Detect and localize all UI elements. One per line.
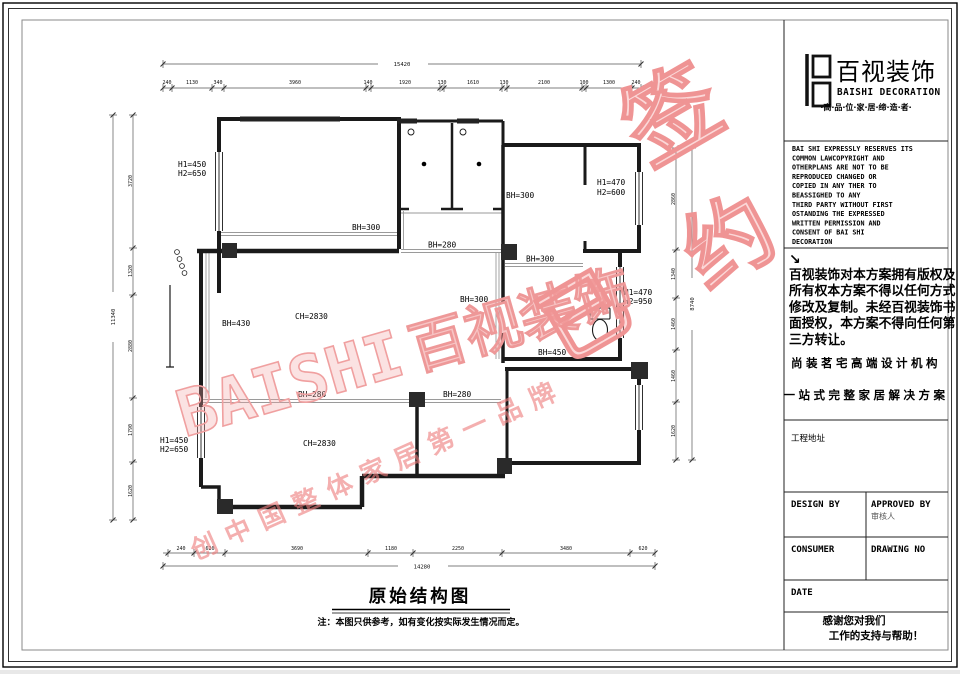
svg-text:1920: 1920 — [399, 80, 411, 86]
dim-left-total: 11340 — [111, 309, 117, 326]
svg-text:130: 130 — [437, 80, 446, 86]
thanks-note: 感谢您对我们 — [823, 614, 886, 627]
label-bh: BH=280 — [428, 241, 456, 250]
label-bh: BH=300 — [352, 223, 380, 232]
svg-text:240: 240 — [176, 546, 185, 552]
svg-text:140: 140 — [363, 80, 372, 86]
svg-text:BAI SHI EXPRESSLY RESERVES ITS: BAI SHI EXPRESSLY RESERVES ITS — [792, 145, 913, 153]
watermark-brand-en: BAISHI — [169, 318, 412, 453]
svg-text:2100: 2100 — [538, 80, 550, 86]
logo-company-name-en: BAISHI DECORATION — [837, 87, 941, 98]
svg-text:2250: 2250 — [452, 546, 464, 552]
label-ch: CH=2830 — [295, 312, 328, 321]
svg-text:1460: 1460 — [671, 370, 677, 382]
svg-text:OTHERPLANS ARE NOT TO BE: OTHERPLANS ARE NOT TO BE — [792, 164, 889, 172]
svg-text:3480: 3480 — [560, 546, 572, 552]
label-ch: CH=2830 — [303, 439, 336, 448]
watermark-stamp-char: 已 — [523, 252, 647, 382]
dim-top-total: 15420 — [394, 62, 411, 68]
svg-text:修改及复制。未经百视装饰书: 修改及复制。未经百视装饰书 — [788, 299, 956, 315]
logo-tagline: ·高·品·位·家·居·缔·造·者· — [820, 102, 911, 112]
arrow-icon: ↘ — [789, 252, 801, 268]
svg-text:OSTANDING THE EXPRESSED: OSTANDING THE EXPRESSED — [792, 210, 885, 218]
svg-text:1130: 1130 — [186, 80, 198, 86]
floorplan-canvas: 15420 240 1130 340 3960 140 1920 130 161… — [0, 0, 960, 670]
svg-text:240: 240 — [162, 80, 171, 86]
svg-text:COMMON LAWCOPYRIGHT AND: COMMON LAWCOPYRIGHT AND — [792, 154, 885, 162]
svg-text:130: 130 — [499, 80, 508, 86]
svg-text:1620: 1620 — [128, 485, 134, 497]
drawing-sheet: 15420 240 1130 340 3960 140 1920 130 161… — [0, 0, 960, 670]
svg-text:340: 340 — [213, 80, 222, 86]
label-bh: BH=300 — [526, 255, 554, 264]
svg-text:三方转让。: 三方转让。 — [789, 332, 853, 348]
svg-text:CONSENT OF BAI SHI: CONSENT OF BAI SHI — [792, 229, 864, 237]
svg-text:3960: 3960 — [289, 80, 301, 86]
logo-company-name-cn: 百视装饰 — [836, 58, 936, 86]
watermark-stamp-char: 约 — [665, 175, 793, 308]
svg-text:2860: 2860 — [671, 193, 677, 205]
svg-text:工作的支持与帮助！: 工作的支持与帮助！ — [829, 629, 924, 642]
svg-text:100: 100 — [579, 80, 588, 86]
label-bh: BH=300 — [506, 191, 534, 200]
svg-text:620: 620 — [638, 546, 647, 552]
shaft-drain-dot — [422, 162, 427, 167]
slogan-design-agency: 尚装茗宅高端设计机构 — [791, 356, 941, 370]
dim-right-total: 8740 — [690, 297, 696, 310]
svg-text:1460: 1460 — [671, 318, 677, 330]
svg-text:WRITTEN PERMISSION AND: WRITTEN PERMISSION AND — [792, 219, 881, 227]
svg-text:1340: 1340 — [671, 268, 677, 280]
watermark-stamp-char: 签 — [605, 46, 741, 187]
svg-text:面授权，本方案不得向任何第: 面授权，本方案不得向任何第 — [789, 316, 956, 332]
label-bh: BH=280 — [443, 390, 471, 399]
watermark: BAISHI 百视装饰 已 签 约 创中国整体家居第一品牌 — [169, 46, 793, 567]
slogan-one-stop: 一站式完整家居解决方案 — [784, 388, 949, 402]
shaft-drain-dot — [477, 162, 482, 167]
title-block-panel: 百视装饰 BAISHI DECORATION ·高·品·位·家·居·缔·造·者·… — [784, 20, 956, 650]
svg-text:2880: 2880 — [128, 340, 134, 352]
label-h1-h2: H1=450 — [178, 160, 206, 169]
label-bh: BH=430 — [222, 319, 250, 328]
svg-text:H2=650: H2=650 — [160, 445, 188, 454]
svg-text:THIRD PARTY WITHOUT FIRST: THIRD PARTY WITHOUT FIRST — [792, 201, 893, 209]
svg-text:1300: 1300 — [603, 80, 615, 86]
copyright-notice-en: BAI SHI EXPRESSLY RESERVES ITS COMMON LA… — [792, 145, 913, 246]
consumer-label: CONSUMER — [791, 545, 835, 555]
svg-text:1320: 1320 — [128, 265, 134, 277]
shaft-corner-pipe — [408, 129, 414, 135]
project-address-label: 工程地址 — [791, 433, 826, 444]
svg-text:H2=650: H2=650 — [178, 169, 206, 178]
drawing-no-label: DRAWING NO — [871, 545, 926, 555]
shaft-corner-pipe — [460, 129, 466, 135]
svg-text:3720: 3720 — [128, 175, 134, 187]
svg-text:所有权本方案不得以任何方式: 所有权本方案不得以任何方式 — [789, 283, 956, 299]
drawing-title: 原始结构图 — [369, 586, 472, 607]
svg-text:1180: 1180 — [385, 546, 397, 552]
svg-text:1790: 1790 — [128, 424, 134, 436]
date-label: DATE — [791, 588, 813, 598]
copyright-notice-cn: 百视装饰对本方案拥有版权及 所有权本方案不得以任何方式 修改及复制。未经百视装饰… — [788, 267, 956, 348]
dim-bottom-total: 14280 — [414, 565, 431, 571]
svg-text:DECORATION: DECORATION — [792, 238, 832, 246]
label-h1-h2: H1=470 — [597, 178, 625, 187]
svg-text:COPIED IN ANY THER TO: COPIED IN ANY THER TO — [792, 182, 877, 190]
approved-by-label-cn: 审核人 — [871, 511, 895, 521]
design-by-label: DESIGN BY — [791, 500, 840, 510]
approved-by-label: APPROVED BY — [871, 500, 931, 510]
svg-text:1610: 1610 — [467, 80, 479, 86]
svg-text:百视装饰对本方案拥有版权及: 百视装饰对本方案拥有版权及 — [789, 267, 956, 283]
svg-text:3690: 3690 — [291, 546, 303, 552]
svg-text:REPRODUCED CHANGED OR: REPRODUCED CHANGED OR — [792, 173, 878, 181]
company-logo-icon — [807, 54, 830, 106]
svg-text:BEASSIGHED TO ANY: BEASSIGHED TO ANY — [792, 192, 860, 200]
drawing-note: 注：本图只供参考，如有变化按实际发生情况而定。 — [317, 616, 524, 628]
svg-text:H2=600: H2=600 — [597, 188, 625, 197]
drawing-title-block: 原始结构图 注：本图只供参考，如有变化按实际发生情况而定。 — [317, 586, 524, 628]
svg-text:1620: 1620 — [671, 425, 677, 437]
